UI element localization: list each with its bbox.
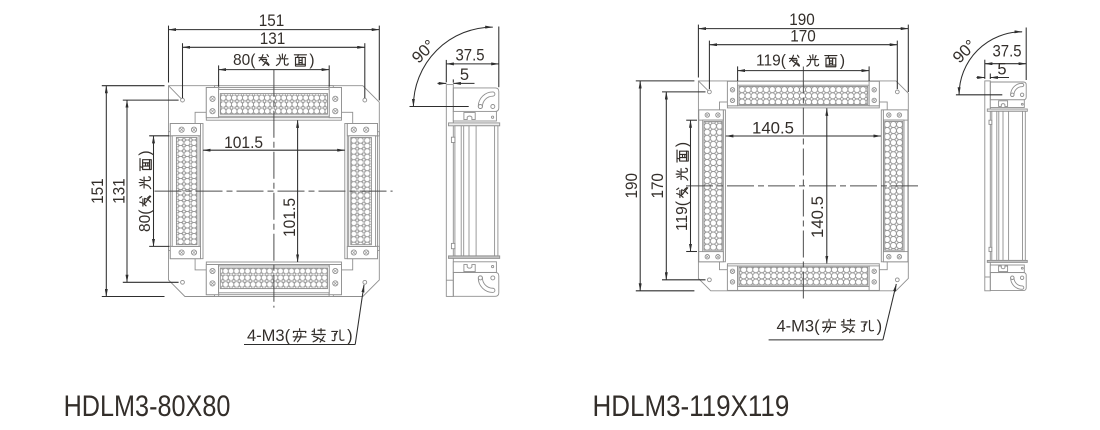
svg-text:151: 151 xyxy=(89,178,107,204)
svg-text:): ) xyxy=(347,327,353,345)
svg-text:4-M3(: 4-M3( xyxy=(247,327,291,345)
svg-text:): ) xyxy=(877,318,883,336)
svg-text:): ) xyxy=(674,142,691,147)
svg-text:37.5: 37.5 xyxy=(456,47,485,65)
svg-text:151: 151 xyxy=(259,12,285,30)
svg-text:140.5: 140.5 xyxy=(809,196,827,238)
svg-text:119(: 119( xyxy=(674,200,691,231)
svg-text:119(: 119( xyxy=(756,53,787,70)
svg-text:80(: 80( xyxy=(233,52,256,69)
svg-text:131: 131 xyxy=(260,30,286,48)
svg-text:101.5: 101.5 xyxy=(224,134,263,152)
svg-text:80(: 80( xyxy=(137,209,154,232)
svg-text:131: 131 xyxy=(110,178,128,204)
svg-text:101.5: 101.5 xyxy=(281,198,299,237)
svg-text:170: 170 xyxy=(790,27,816,45)
svg-text:190: 190 xyxy=(623,173,641,199)
svg-text:5: 5 xyxy=(460,66,469,84)
svg-text:37.5: 37.5 xyxy=(993,43,1022,61)
svg-text:): ) xyxy=(309,52,314,69)
svg-text:4-M3(: 4-M3( xyxy=(777,318,821,336)
svg-text:5: 5 xyxy=(997,61,1006,79)
svg-text:140.5: 140.5 xyxy=(752,119,794,137)
svg-text:): ) xyxy=(137,150,154,155)
svg-text:170: 170 xyxy=(649,173,667,199)
svg-text:): ) xyxy=(840,53,845,70)
svg-text:HDLM3-80X80: HDLM3-80X80 xyxy=(64,390,231,423)
svg-text:HDLM3-119X119: HDLM3-119X119 xyxy=(593,390,790,423)
